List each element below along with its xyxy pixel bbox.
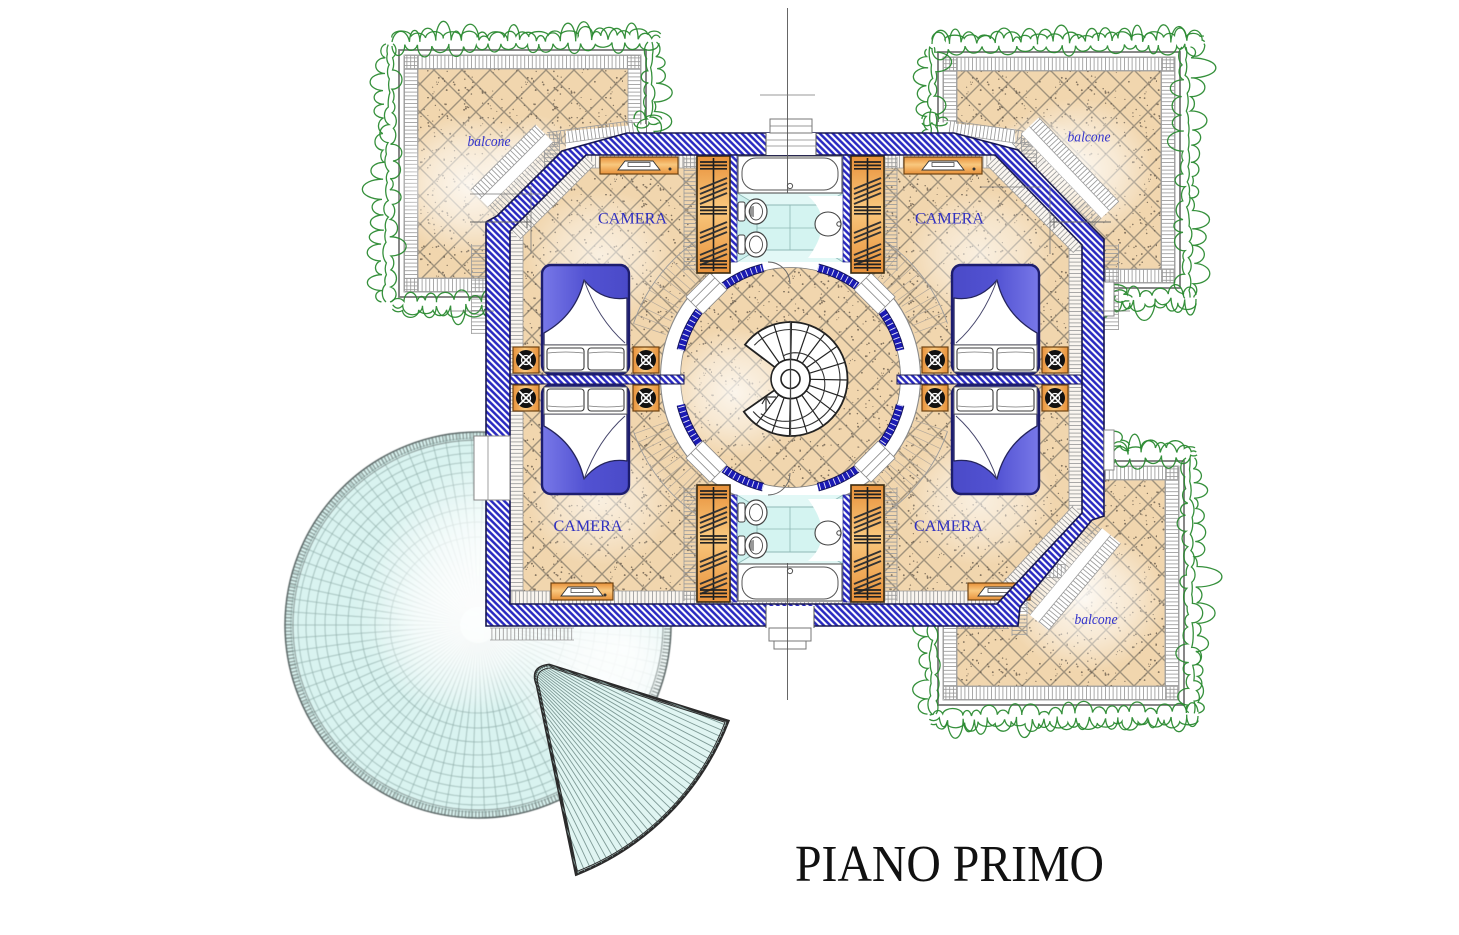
svg-text:CAMERA: CAMERA — [598, 211, 667, 228]
svg-text:CAMERA: CAMERA — [914, 518, 983, 535]
svg-text:balcone: balcone — [468, 134, 511, 150]
svg-text:balcone: balcone — [1075, 612, 1118, 628]
svg-text:CAMERA: CAMERA — [915, 211, 984, 228]
svg-text:CAMERA: CAMERA — [554, 518, 623, 535]
svg-text:PIANO PRIMO: PIANO PRIMO — [795, 836, 1104, 893]
svg-text:balcone: balcone — [1068, 130, 1111, 146]
